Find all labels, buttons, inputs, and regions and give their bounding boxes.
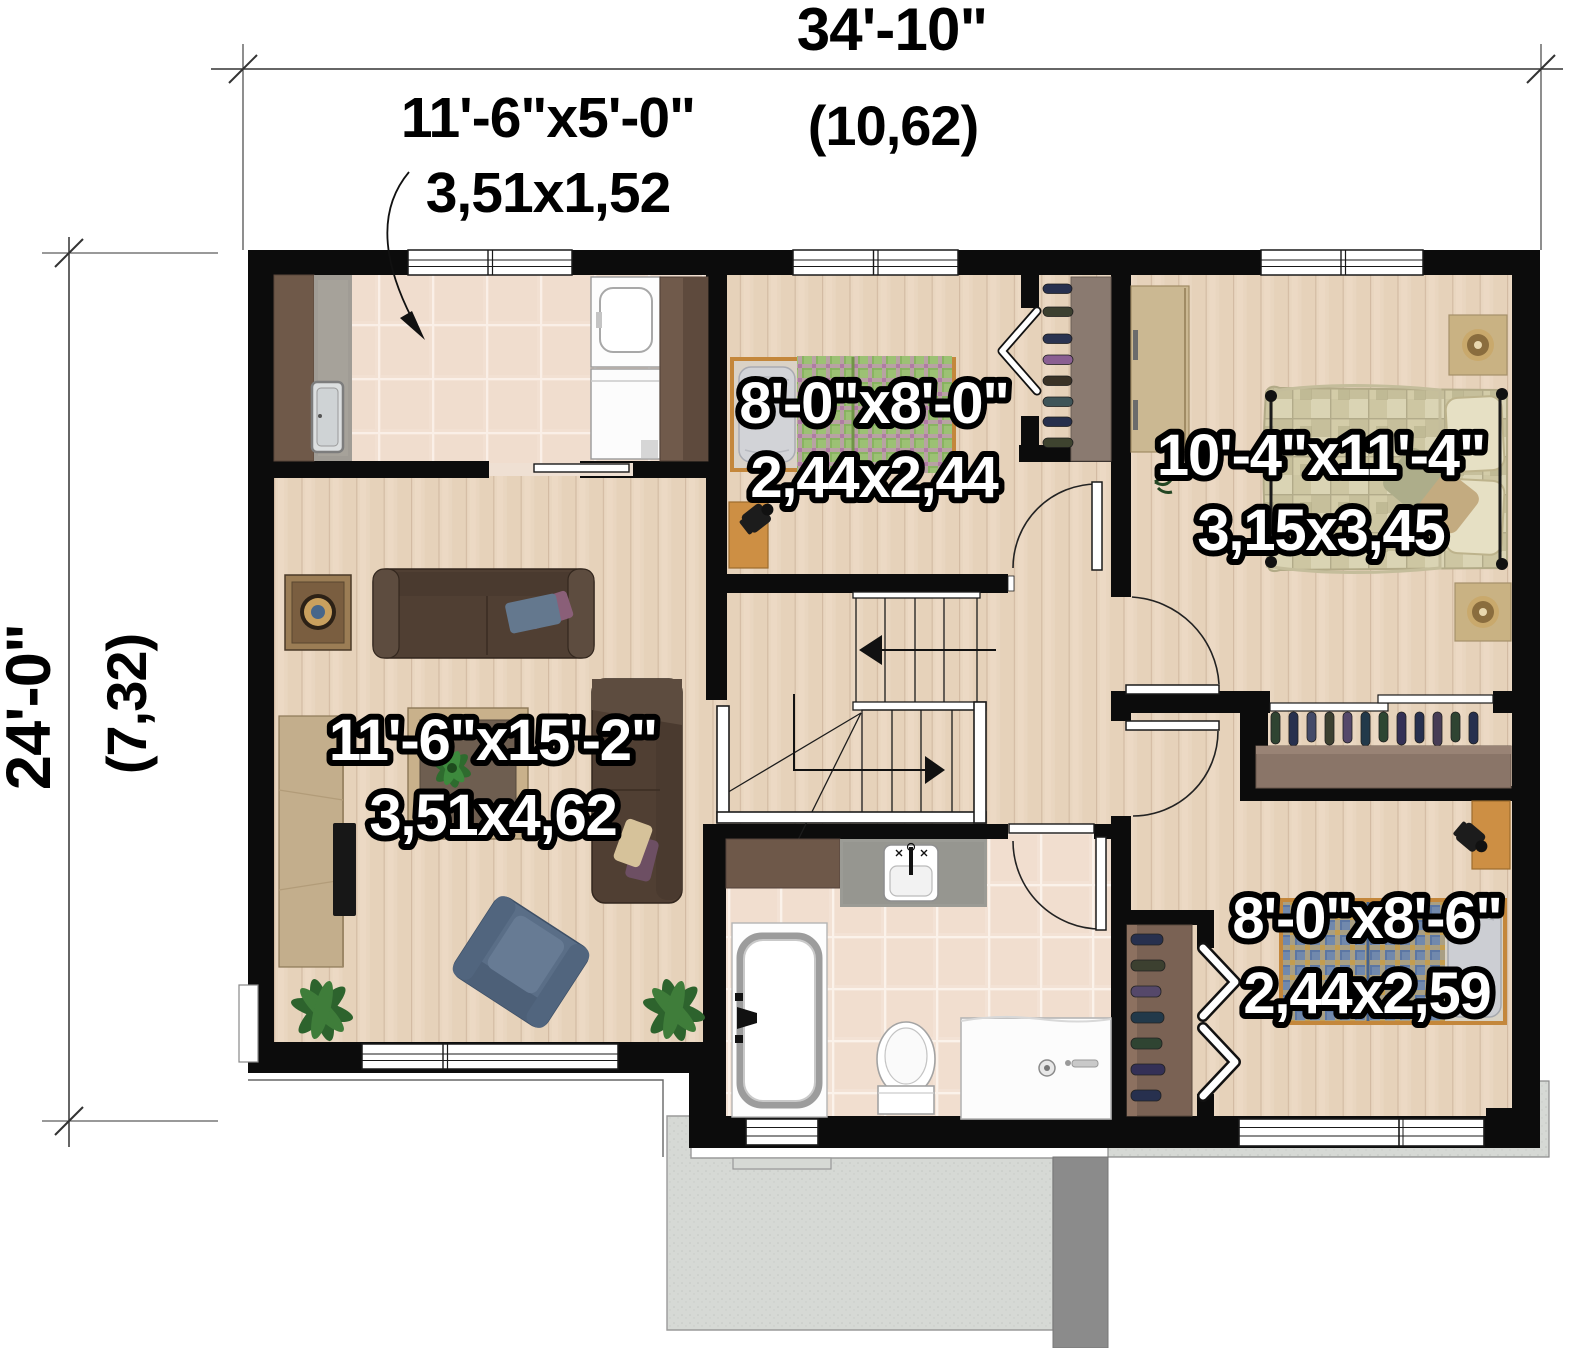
svg-text:8'-0"x8'-6": 8'-0"x8'-6"	[1232, 886, 1501, 951]
svg-text:(7,32): (7,32)	[95, 634, 158, 774]
svg-text:3,51x4,62: 3,51x4,62	[369, 783, 616, 848]
svg-text:8'-0"x8'-0": 8'-0"x8'-0"	[739, 371, 1008, 436]
svg-text:3,15x3,45: 3,15x3,45	[1197, 498, 1444, 563]
svg-text:34'-10": 34'-10"	[797, 0, 988, 63]
svg-text:11'-6"x5'-0": 11'-6"x5'-0"	[401, 86, 695, 150]
svg-text:10'-4"x11'-4": 10'-4"x11'-4"	[1157, 423, 1485, 488]
svg-text:11'-6"x15'-2": 11'-6"x15'-2"	[329, 708, 657, 773]
svg-text:2,44x2,59: 2,44x2,59	[1243, 961, 1490, 1026]
svg-text:(10,62): (10,62)	[808, 94, 978, 157]
svg-text:2,44x2,44: 2,44x2,44	[750, 445, 998, 510]
svg-text:3,51x1,52: 3,51x1,52	[426, 161, 671, 225]
svg-text:24'-0": 24'-0"	[0, 624, 64, 790]
